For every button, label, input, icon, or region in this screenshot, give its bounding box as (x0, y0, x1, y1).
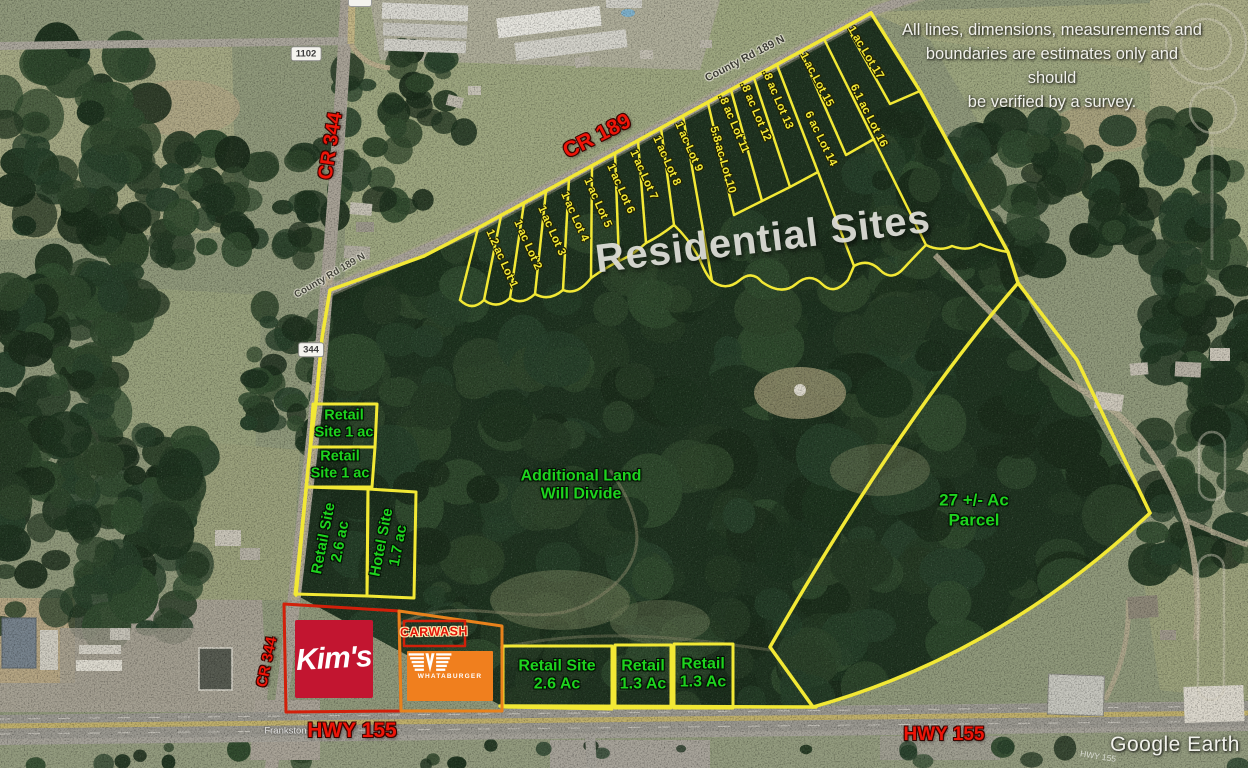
kims-sign-text: Kim's (295, 640, 372, 678)
disclaimer-line-3: be verified by a survey. (902, 90, 1202, 114)
google-earth-watermark: Google Earth (1110, 733, 1240, 757)
whataburger-w-icon (407, 651, 453, 677)
site-label-retail-1b: Retail Site 1 ac (311, 448, 370, 481)
site-label-line: Retail (620, 658, 667, 676)
google-earth-map: Residential Sites All lines, dimensions,… (0, 0, 1248, 768)
disclaimer-line-1: All lines, dimensions, measurements and (902, 18, 1202, 42)
site-label-27ac-parcel: 27 +/- Ac Parcel (939, 490, 1009, 529)
site-label-line: Additional Land (521, 468, 642, 486)
carwash-sign-text: CARWASH (400, 624, 468, 640)
road-shield-1102: 1102 (291, 46, 322, 61)
site-label-line: Retail (315, 407, 374, 424)
site-label-line: 1.3 Ac (620, 676, 667, 694)
site-label-retail-1a: Retail Site 1 ac (315, 407, 374, 440)
site-label-additional-land: Additional Land Will Divide (521, 468, 642, 505)
site-label-line: 2.6 Ac (518, 676, 595, 694)
site-label-line: Site 1 ac (311, 465, 370, 482)
site-label-line: 1.3 Ac (680, 674, 727, 692)
site-label-retail-bottom-13a: Retail 1.3 Ac (620, 658, 667, 695)
disclaimer-line-2: boundaries are estimates only and should (902, 42, 1202, 90)
road-label-hwy155-left: HWY 155 (307, 719, 397, 743)
road-label-hwy155-right: HWY 155 (904, 724, 985, 746)
site-label-line: Parcel (939, 510, 1009, 530)
whataburger-sign: WHATABURGER (407, 651, 493, 701)
road-shield-344: 344 (298, 342, 324, 357)
site-label-line: Retail (311, 448, 370, 465)
site-label-retail-bottom-26: Retail Site 2.6 Ac (518, 658, 595, 695)
site-label-line: 27 +/- Ac (939, 490, 1009, 510)
site-label-line: Site 1 ac (315, 424, 374, 441)
site-label-retail-bottom-13b: Retail 1.3 Ac (680, 656, 727, 693)
road-shield-partial (348, 0, 372, 7)
site-label-line: Will Divide (521, 486, 642, 504)
kims-sign: Kim's (295, 620, 373, 698)
site-label-line: Retail (680, 656, 727, 674)
site-label-line: Retail Site (518, 658, 595, 676)
disclaimer-text: All lines, dimensions, measurements and … (902, 18, 1202, 114)
